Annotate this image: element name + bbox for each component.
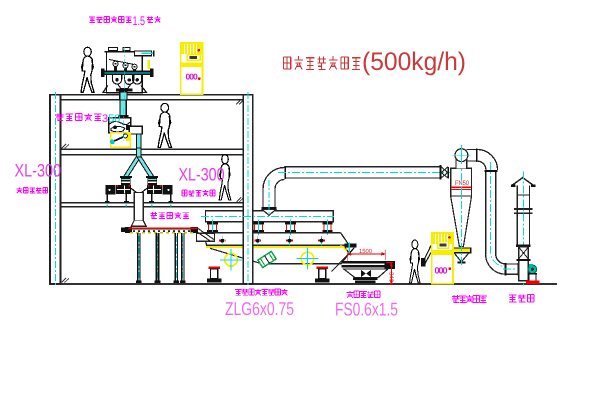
svg-text:000: 000 xyxy=(435,266,448,276)
svg-text:FN50: FN50 xyxy=(455,180,469,187)
svg-text:ZLG6x0.75: ZLG6x0.75 xyxy=(225,298,294,319)
svg-text:XL-300: XL-300 xyxy=(179,165,225,185)
svg-text:000: 000 xyxy=(186,72,198,82)
svg-text:FS0.6x1.5: FS0.6x1.5 xyxy=(335,299,398,320)
svg-text:350: 350 xyxy=(102,113,120,125)
svg-text:(500kg/h): (500kg/h) xyxy=(362,48,466,76)
svg-text:1500: 1500 xyxy=(359,248,373,255)
svg-text:1.5: 1.5 xyxy=(133,14,146,28)
svg-text:XL-300: XL-300 xyxy=(15,161,62,181)
svg-text:340: 340 xyxy=(387,272,394,283)
